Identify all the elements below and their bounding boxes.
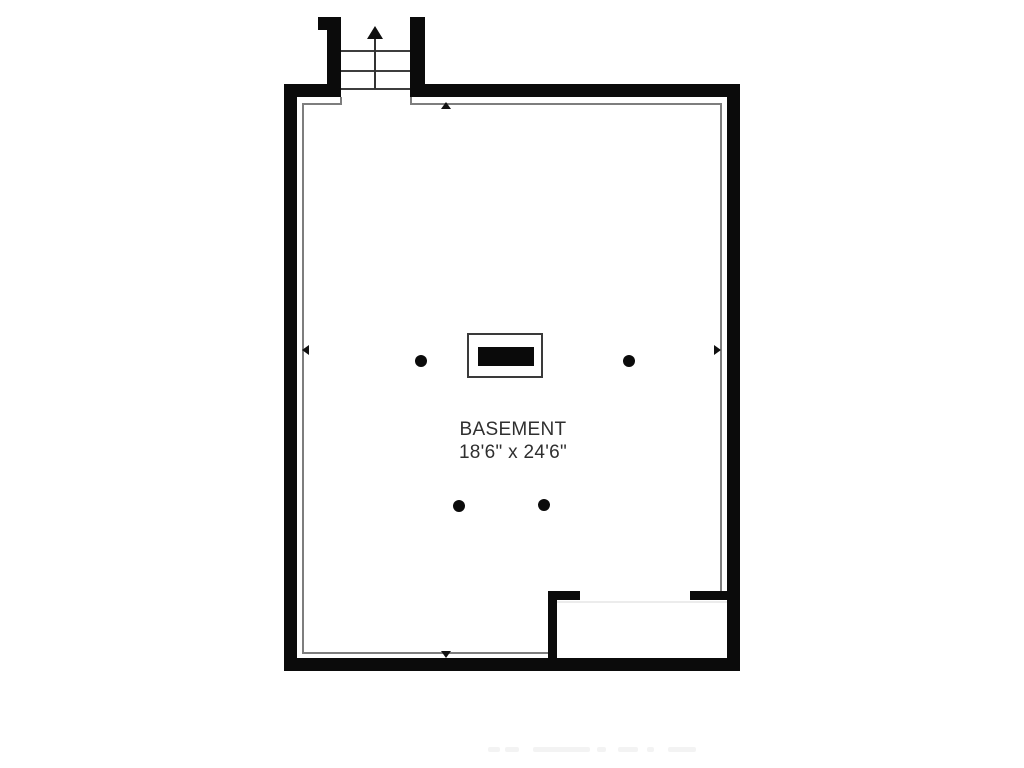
support-post-dot xyxy=(453,500,465,512)
watermark-dash xyxy=(647,747,654,752)
basement-floorplan: BASEMENT 18'6" x 24'6" xyxy=(0,0,1024,768)
fireplace-footprint-insert xyxy=(478,347,534,366)
dimension-marker-up-icon xyxy=(441,102,451,109)
alcove-partition-wall-stub-right xyxy=(690,591,727,600)
exterior-wall-right xyxy=(727,84,740,671)
watermark-dash xyxy=(488,747,500,752)
room-name-label: BASEMENT xyxy=(413,418,613,441)
stair-up-arrow-shaft xyxy=(374,38,376,89)
stair-opening-jamb-left xyxy=(340,97,342,105)
watermark-dash xyxy=(505,747,519,752)
interior-outline-left xyxy=(302,103,304,654)
dimension-marker-down-icon xyxy=(441,651,451,658)
interior-outline-top-left xyxy=(302,103,341,105)
stair-opening-jamb-right xyxy=(410,97,412,105)
dimension-marker-right-icon xyxy=(714,345,721,355)
watermark-dash xyxy=(533,747,590,752)
support-post-dot xyxy=(623,355,635,367)
exterior-wall-bottom xyxy=(284,658,740,671)
room-dimensions-label: 18'6" x 24'6" xyxy=(413,441,613,464)
support-post-dot xyxy=(415,355,427,367)
room-label-group: BASEMENT 18'6" x 24'6" xyxy=(413,418,613,464)
interior-outline-bottom xyxy=(302,652,548,654)
alcove-partition-wall-vertical xyxy=(548,591,557,658)
watermark-dash xyxy=(618,747,638,752)
stairwell-wall-right xyxy=(410,17,425,97)
interior-outline-top-right xyxy=(410,103,722,105)
exterior-wall-top-right-segment xyxy=(410,84,740,97)
watermark-dash xyxy=(597,747,606,752)
alcove-door-opening-line xyxy=(557,601,727,603)
dimension-marker-left-icon xyxy=(302,345,309,355)
watermark-dash xyxy=(668,747,696,752)
support-post-dot xyxy=(538,499,550,511)
stairwell-wall-left-cap xyxy=(318,17,327,30)
stair-up-arrow-icon xyxy=(367,26,383,39)
alcove-partition-wall-stub-left xyxy=(548,591,580,600)
stairwell-wall-left xyxy=(327,17,341,97)
exterior-wall-left xyxy=(284,84,297,671)
